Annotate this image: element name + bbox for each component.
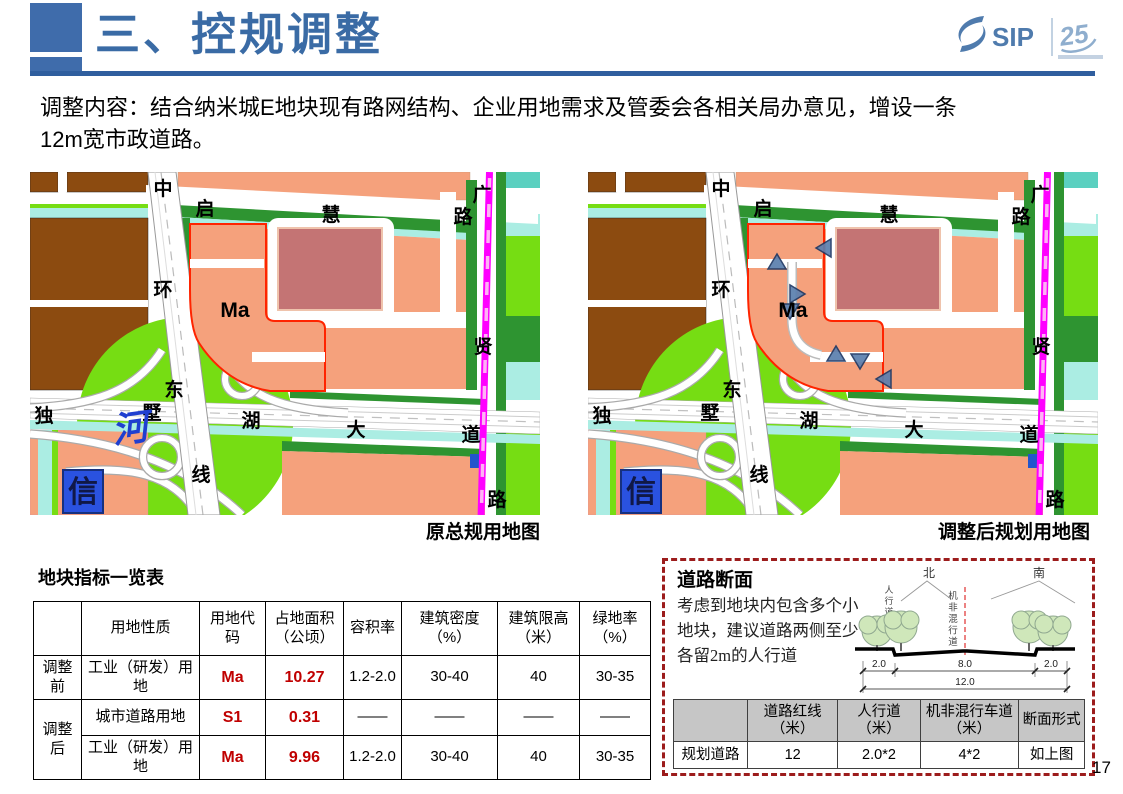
table-row: 调整前工业（研发）用地Ma10.271.2-2.030-404030-35: [34, 656, 651, 700]
road-panel-title: 道路断面: [677, 565, 753, 592]
map-road-label: 贤: [473, 336, 492, 358]
desc-line: 地块，建议道路两侧至少: [677, 618, 867, 643]
plot-table-cell: 工业（研发）用地: [82, 736, 200, 780]
map-road-label: 环: [711, 280, 730, 301]
road-table-cell: 12: [747, 742, 837, 769]
map-road-label: 湖: [241, 410, 260, 432]
plot-table-cell: 40: [498, 656, 580, 700]
map-road-label: 路: [487, 488, 507, 511]
map-road-label: 墅: [700, 402, 719, 424]
page-title: 三、控规调整: [95, 2, 383, 68]
stage-label: 调整后: [34, 700, 82, 780]
map-road-label: 独: [592, 404, 611, 427]
road-cross-section-diagram: 北 南 人行道 机非混行道: [841, 561, 1091, 699]
map-road-label: 路: [1045, 488, 1065, 511]
svg-text:混: 混: [948, 614, 958, 625]
plot-table-cell: 30-40: [402, 736, 498, 780]
plot-table-header: 用地性质: [82, 602, 200, 656]
svg-text:人: 人: [884, 585, 893, 595]
map-original: 中启慧广路环贤东独墅湖大道线路Ma信河: [30, 172, 540, 515]
header-rule: [30, 71, 1095, 76]
north-label: 北: [923, 566, 935, 580]
map-road-label: 道: [461, 423, 480, 446]
dim-line-total: 12.0: [860, 677, 1070, 692]
svg-text:非: 非: [948, 602, 958, 614]
road-table-header: 道路红线（米）: [747, 700, 837, 742]
plot-table-cell: 0.31: [266, 700, 344, 736]
road-table-header: 人行道（米）: [838, 700, 920, 742]
desc-line: 各留2m的人行道: [677, 643, 867, 668]
plot-code-label: Ma: [220, 299, 249, 322]
sip-swoosh-icon: [959, 16, 986, 52]
plot-table-cell: 10.27: [266, 656, 344, 700]
map-adjusted-caption: 调整后规划用地图: [580, 517, 1090, 544]
map-road-label: 线: [749, 463, 768, 486]
plot-table-cell: Ma: [200, 736, 266, 780]
svg-text:行: 行: [948, 625, 958, 637]
plot-table-cell: ——: [580, 700, 651, 736]
map-adjusted: 中启慧广路环贤东独墅湖大道线路Ma信: [588, 172, 1098, 515]
page-number: 17: [1092, 758, 1111, 778]
plot-table-cell: 30-40: [402, 656, 498, 700]
map-road-label: 启: [195, 197, 214, 220]
dim-line-1: 2.0 8.0 2.0: [860, 659, 1070, 674]
road-table-cell: 4*2: [920, 742, 1019, 769]
plot-table-cell: 40: [498, 736, 580, 780]
intro-paragraph: 调整内容：结合纳米城E地块现有路网结构、企业用地需求及管委会各相关局办意见，增设…: [40, 92, 1090, 156]
stage-label: 调整前: [34, 656, 82, 700]
map-road-label: 独: [34, 404, 53, 427]
map-road-label: 中: [153, 177, 172, 200]
intro-line-2: 12m宽市政道路。: [40, 124, 1090, 156]
plot-table-header: 建筑密度（%）: [402, 602, 498, 656]
map-road-label: 贤: [1031, 336, 1050, 358]
dim-left: 2.0: [872, 659, 886, 670]
table-row: 调整后城市道路用地S10.31————————: [34, 700, 651, 736]
map-road-label: 东: [164, 378, 183, 401]
road-panel-description: 考虑到地块内包含多个小 地块，建议道路两侧至少 各留2m的人行道: [677, 593, 867, 668]
blue-sign-label: 信: [68, 476, 98, 509]
svg-text:行: 行: [884, 595, 893, 606]
plot-table-header: 建筑限高（米）: [498, 602, 580, 656]
map-road-label: 环: [153, 280, 172, 301]
map-road-label: 启: [753, 197, 772, 220]
plot-table-cell: ——: [402, 700, 498, 736]
plot-table-cell: 30-35: [580, 656, 651, 700]
plot-table-header: 绿地率（%）: [580, 602, 651, 656]
plot-table-cell: S1: [200, 700, 266, 736]
plot-code-label: Ma: [778, 299, 807, 322]
desc-line: 考虑到地块内包含多个小: [677, 593, 867, 618]
north-leader-line: [901, 581, 951, 601]
south-label: 南: [1033, 565, 1045, 580]
plot-table-cell: 工业（研发）用地: [82, 656, 200, 700]
map-road-label: 道: [1019, 423, 1038, 446]
map-road-label: 东: [722, 378, 741, 401]
sip-text: SIP: [992, 22, 1034, 52]
mixed-lane-label: 机非混行道: [948, 590, 958, 648]
plot-table-cell: 9.96: [266, 736, 344, 780]
plot-table-cell: 30-35: [580, 736, 651, 780]
map-road-label: 大: [346, 418, 365, 441]
intro-line-1: 调整内容：结合纳米城E地块现有路网结构、企业用地需求及管委会各相关局办意见，增设…: [40, 92, 1090, 124]
plot-table-header: 占地面积（公顷）: [266, 602, 344, 656]
map-original-caption: 原总规用地图: [30, 517, 540, 544]
table-row: 规划道路122.0*24*2如上图: [674, 742, 1085, 769]
road-panel-table: 道路红线（米）人行道（米）机非混行车道（米）断面形式规划道路122.0*24*2…: [673, 699, 1085, 769]
plot-table-cell: Ma: [200, 656, 266, 700]
dim-right: 2.0: [1044, 659, 1058, 670]
map-road-label: 广: [1030, 183, 1049, 206]
map-road-label: 广: [472, 183, 491, 206]
dim-mid: 8.0: [958, 659, 972, 670]
plot-table-cell: 城市道路用地: [82, 700, 200, 736]
svg-text:道: 道: [948, 636, 958, 648]
plot-table-cell: 1.2-2.0: [344, 736, 402, 780]
road-table-cell: 如上图: [1019, 742, 1085, 769]
plot-table-header: 容积率: [344, 602, 402, 656]
map-road-label: 慧: [879, 203, 898, 226]
road-section-panel: 道路断面 考虑到地块内包含多个小 地块，建议道路两侧至少 各留2m的人行道 北 …: [662, 558, 1095, 776]
map-road-label: 湖: [799, 410, 818, 432]
south-leader-line: [991, 581, 1075, 603]
table-row: 工业（研发）用地Ma9.961.2-2.030-404030-35: [34, 736, 651, 780]
map-road-label: 路: [453, 205, 473, 228]
plot-table: 用地性质用地代码占地面积（公顷）容积率建筑密度（%）建筑限高（米）绿地率（%）调…: [33, 601, 651, 780]
road-table-corner: [674, 700, 748, 742]
plot-table-corner: [34, 602, 82, 656]
map-road-label: 线: [191, 463, 210, 486]
sip-logo: SIP 25: [948, 10, 1103, 64]
road-table-cell: 2.0*2: [838, 742, 920, 769]
dim-total: 12.0: [955, 677, 975, 688]
plot-table-cell: 1.2-2.0: [344, 656, 402, 700]
plot-table-title: 地块指标一览表: [38, 564, 164, 590]
map-road-label: 慧: [321, 203, 340, 226]
svg-text:机: 机: [948, 590, 958, 602]
logo-tagline-bar: [1058, 55, 1103, 59]
header-accent-bar: [30, 57, 82, 72]
road-table-header: 断面形式: [1019, 700, 1085, 742]
map-road-label: 路: [1011, 205, 1031, 228]
road-table-cell: 规划道路: [674, 742, 748, 769]
map-road-label: 大: [904, 418, 923, 441]
slide: 三、控规调整 SIP 25 调整内容：结合纳米城E地块现有路网结构、企业用地需求…: [0, 0, 1123, 794]
road-table-header: 机非混行车道（米）: [920, 700, 1019, 742]
plot-table-cell: ——: [344, 700, 402, 736]
header-accent-square: [30, 3, 82, 52]
plot-table-cell: ——: [498, 700, 580, 736]
map-road-label: 中: [711, 177, 730, 200]
blue-sign-label: 信: [626, 476, 656, 509]
plot-table-header: 用地代码: [200, 602, 266, 656]
